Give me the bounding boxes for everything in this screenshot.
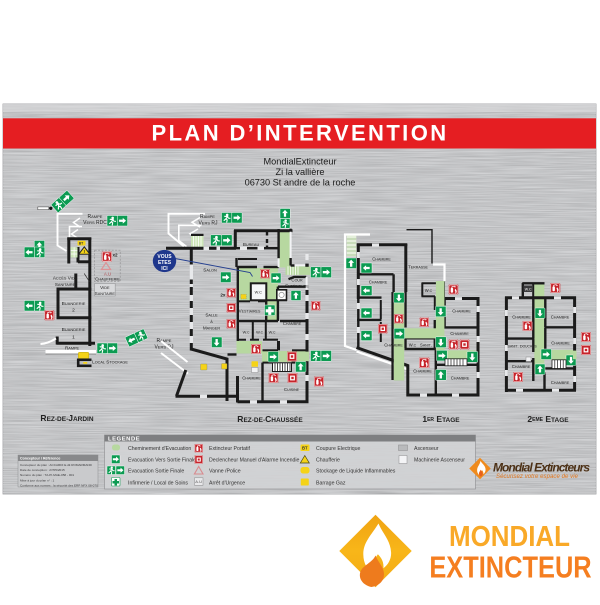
svg-text:Conforme aux normes : la sécur: Conforme aux normes : la sécurité des ER… xyxy=(20,484,98,488)
svg-text:ACCÈS VIDE: ACCÈS VIDE xyxy=(53,276,78,281)
svg-text:SANIT. DOUCHES: SANIT. DOUCHES xyxy=(507,344,537,349)
svg-text:CHAMBRE: CHAMBRE xyxy=(551,341,570,346)
svg-text:W.C: W.C xyxy=(243,330,251,335)
svg-text:SANITAIRE: SANITAIRE xyxy=(95,291,116,296)
svg-text:Machinerie Ascenseur: Machinerie Ascenseur xyxy=(414,458,465,464)
svg-text:EXTÉRIEURE: EXTÉRIEURE xyxy=(285,284,309,289)
svg-text:2: 2 xyxy=(72,308,75,314)
svg-text:2x: 2x xyxy=(220,293,226,298)
svg-text:Ascenseur: Ascenseur xyxy=(414,446,439,452)
svg-text:Evacuation Sortie Finale: Evacuation Sortie Finale xyxy=(128,469,184,475)
svg-text:CHAMBRE: CHAMBRE xyxy=(283,321,302,326)
svg-text:BUREAU: BUREAU xyxy=(243,242,260,247)
svg-text:Arrêt d'Urgence: Arrêt d'Urgence xyxy=(209,481,245,487)
svg-text:PLAN D’INTERVENTION: PLAN D’INTERVENTION xyxy=(152,121,449,146)
svg-text:CHAMBRE: CHAMBRE xyxy=(369,280,388,285)
svg-text:A.U: A.U xyxy=(195,479,202,484)
svg-text:W.C: W.C xyxy=(525,288,532,292)
svg-text:CHAMBRE: CHAMBRE xyxy=(384,343,403,348)
svg-text:MANGER: MANGER xyxy=(203,326,221,331)
svg-text:A.U: A.U xyxy=(104,272,111,277)
svg-text:MONDIAL: MONDIAL xyxy=(449,520,570,553)
svg-text:Zi la vallière: Zi la vallière xyxy=(275,167,324,177)
svg-text:W.C: W.C xyxy=(269,330,277,335)
svg-text:CHAMBRE: CHAMBRE xyxy=(372,257,391,262)
svg-text:CHAUFFERIE: CHAUFFERIE xyxy=(95,277,120,282)
svg-text:W.C: W.C xyxy=(409,343,417,348)
svg-text:ICI: ICI xyxy=(161,266,168,272)
svg-text:CHAMBRE: CHAMBRE xyxy=(512,315,531,320)
svg-text:SALON: SALON xyxy=(203,268,217,273)
svg-text:SANITAIRE: SANITAIRE xyxy=(55,282,76,287)
svg-text:SANIT.: SANIT. xyxy=(420,343,432,348)
svg-text:Date de conception : 27/05/201: Date de conception : 27/05/2015 xyxy=(20,468,65,472)
svg-text:Stockage de Liquide Inflammabl: Stockage de Liquide Inflammables xyxy=(316,469,396,475)
svg-text:RAMPE: RAMPE xyxy=(65,346,80,351)
svg-text:Evacuation Vers Sortie Finale: Evacuation Vers Sortie Finale xyxy=(128,458,196,464)
svg-text:CHAMBRE: CHAMBRE xyxy=(450,331,469,336)
svg-text:Vanne /Police: Vanne /Police xyxy=(209,469,241,475)
svg-text:À: À xyxy=(210,320,213,324)
svg-text:SALLE: SALLE xyxy=(205,313,218,318)
svg-text:TERRASSE: TERRASSE xyxy=(408,265,428,270)
svg-text:BT: BT xyxy=(302,446,308,451)
svg-text:Barrage Gaz: Barrage Gaz xyxy=(316,481,346,487)
svg-text:W.C: W.C xyxy=(256,330,264,335)
svg-text:x2: x2 xyxy=(113,253,119,258)
svg-text:Concepteur du plan : ACCARDI E: Concepteur du plan : ACCARDI E.dit ROMAR… xyxy=(20,463,93,467)
svg-text:W.C: W.C xyxy=(425,288,433,293)
svg-text:W.C: W.C xyxy=(255,289,263,294)
svg-text:1: 1 xyxy=(72,335,75,341)
svg-text:Coupure Electrique: Coupure Electrique xyxy=(316,446,361,452)
svg-text:CHAMBRE: CHAMBRE xyxy=(512,364,531,369)
svg-text:EXTINCTEUR: EXTINCTEUR xyxy=(429,550,591,585)
svg-text:VIDE: VIDE xyxy=(100,285,110,290)
svg-text:LEGENDE: LEGENDE xyxy=(108,437,140,443)
svg-text:Mondial Extincteurs: Mondial Extincteurs xyxy=(493,461,590,475)
svg-text:Infirmerie / Local de Soins: Infirmerie / Local de Soins xyxy=(128,481,188,487)
svg-text:CUISINE: CUISINE xyxy=(284,387,300,392)
svg-text:Concepteur / Référence: Concepteur / Référence xyxy=(20,457,60,461)
svg-text:LOCAL STOCKAGE: LOCAL STOCKAGE xyxy=(92,360,128,365)
svg-text:Extincteur Portatif: Extincteur Portatif xyxy=(209,446,250,452)
svg-text:CHAMBRE: CHAMBRE xyxy=(242,376,261,381)
svg-text:Chaufferie: Chaufferie xyxy=(316,458,340,464)
svg-text:CHAMBRE: CHAMBRE xyxy=(451,376,470,381)
svg-text:Sécurisez votre espace de vie: Sécurisez votre espace de vie xyxy=(496,474,579,480)
svg-text:CHAMBRE: CHAMBRE xyxy=(452,309,471,314)
svg-text:MondialExtincteur: MondialExtincteur xyxy=(263,157,336,167)
svg-text:CHAMBRE: CHAMBRE xyxy=(551,380,570,385)
svg-text:Cheminement d'Evacuation: Cheminement d'Evacuation xyxy=(128,446,191,452)
svg-text:06730 St andre de la roche: 06730 St andre de la roche xyxy=(245,178,356,188)
svg-text:Mise à jour du plan n° : 1: Mise à jour du plan n° : 1 xyxy=(20,478,55,482)
svg-text:CHAMBRE: CHAMBRE xyxy=(551,315,570,320)
svg-text:Numéro du plan : TA-PI-MAE-058: Numéro du plan : TA-PI-MAE-058 - 001 xyxy=(20,473,74,477)
svg-text:CHAMBRE: CHAMBRE xyxy=(413,369,432,374)
svg-text:VESTIAIRES: VESTIAIRES xyxy=(239,309,261,314)
svg-text:Declencheur Manuel d'Alarme In: Declencheur Manuel d'Alarme Incendie xyxy=(209,458,299,464)
svg-text:COUR: COUR xyxy=(291,278,303,283)
